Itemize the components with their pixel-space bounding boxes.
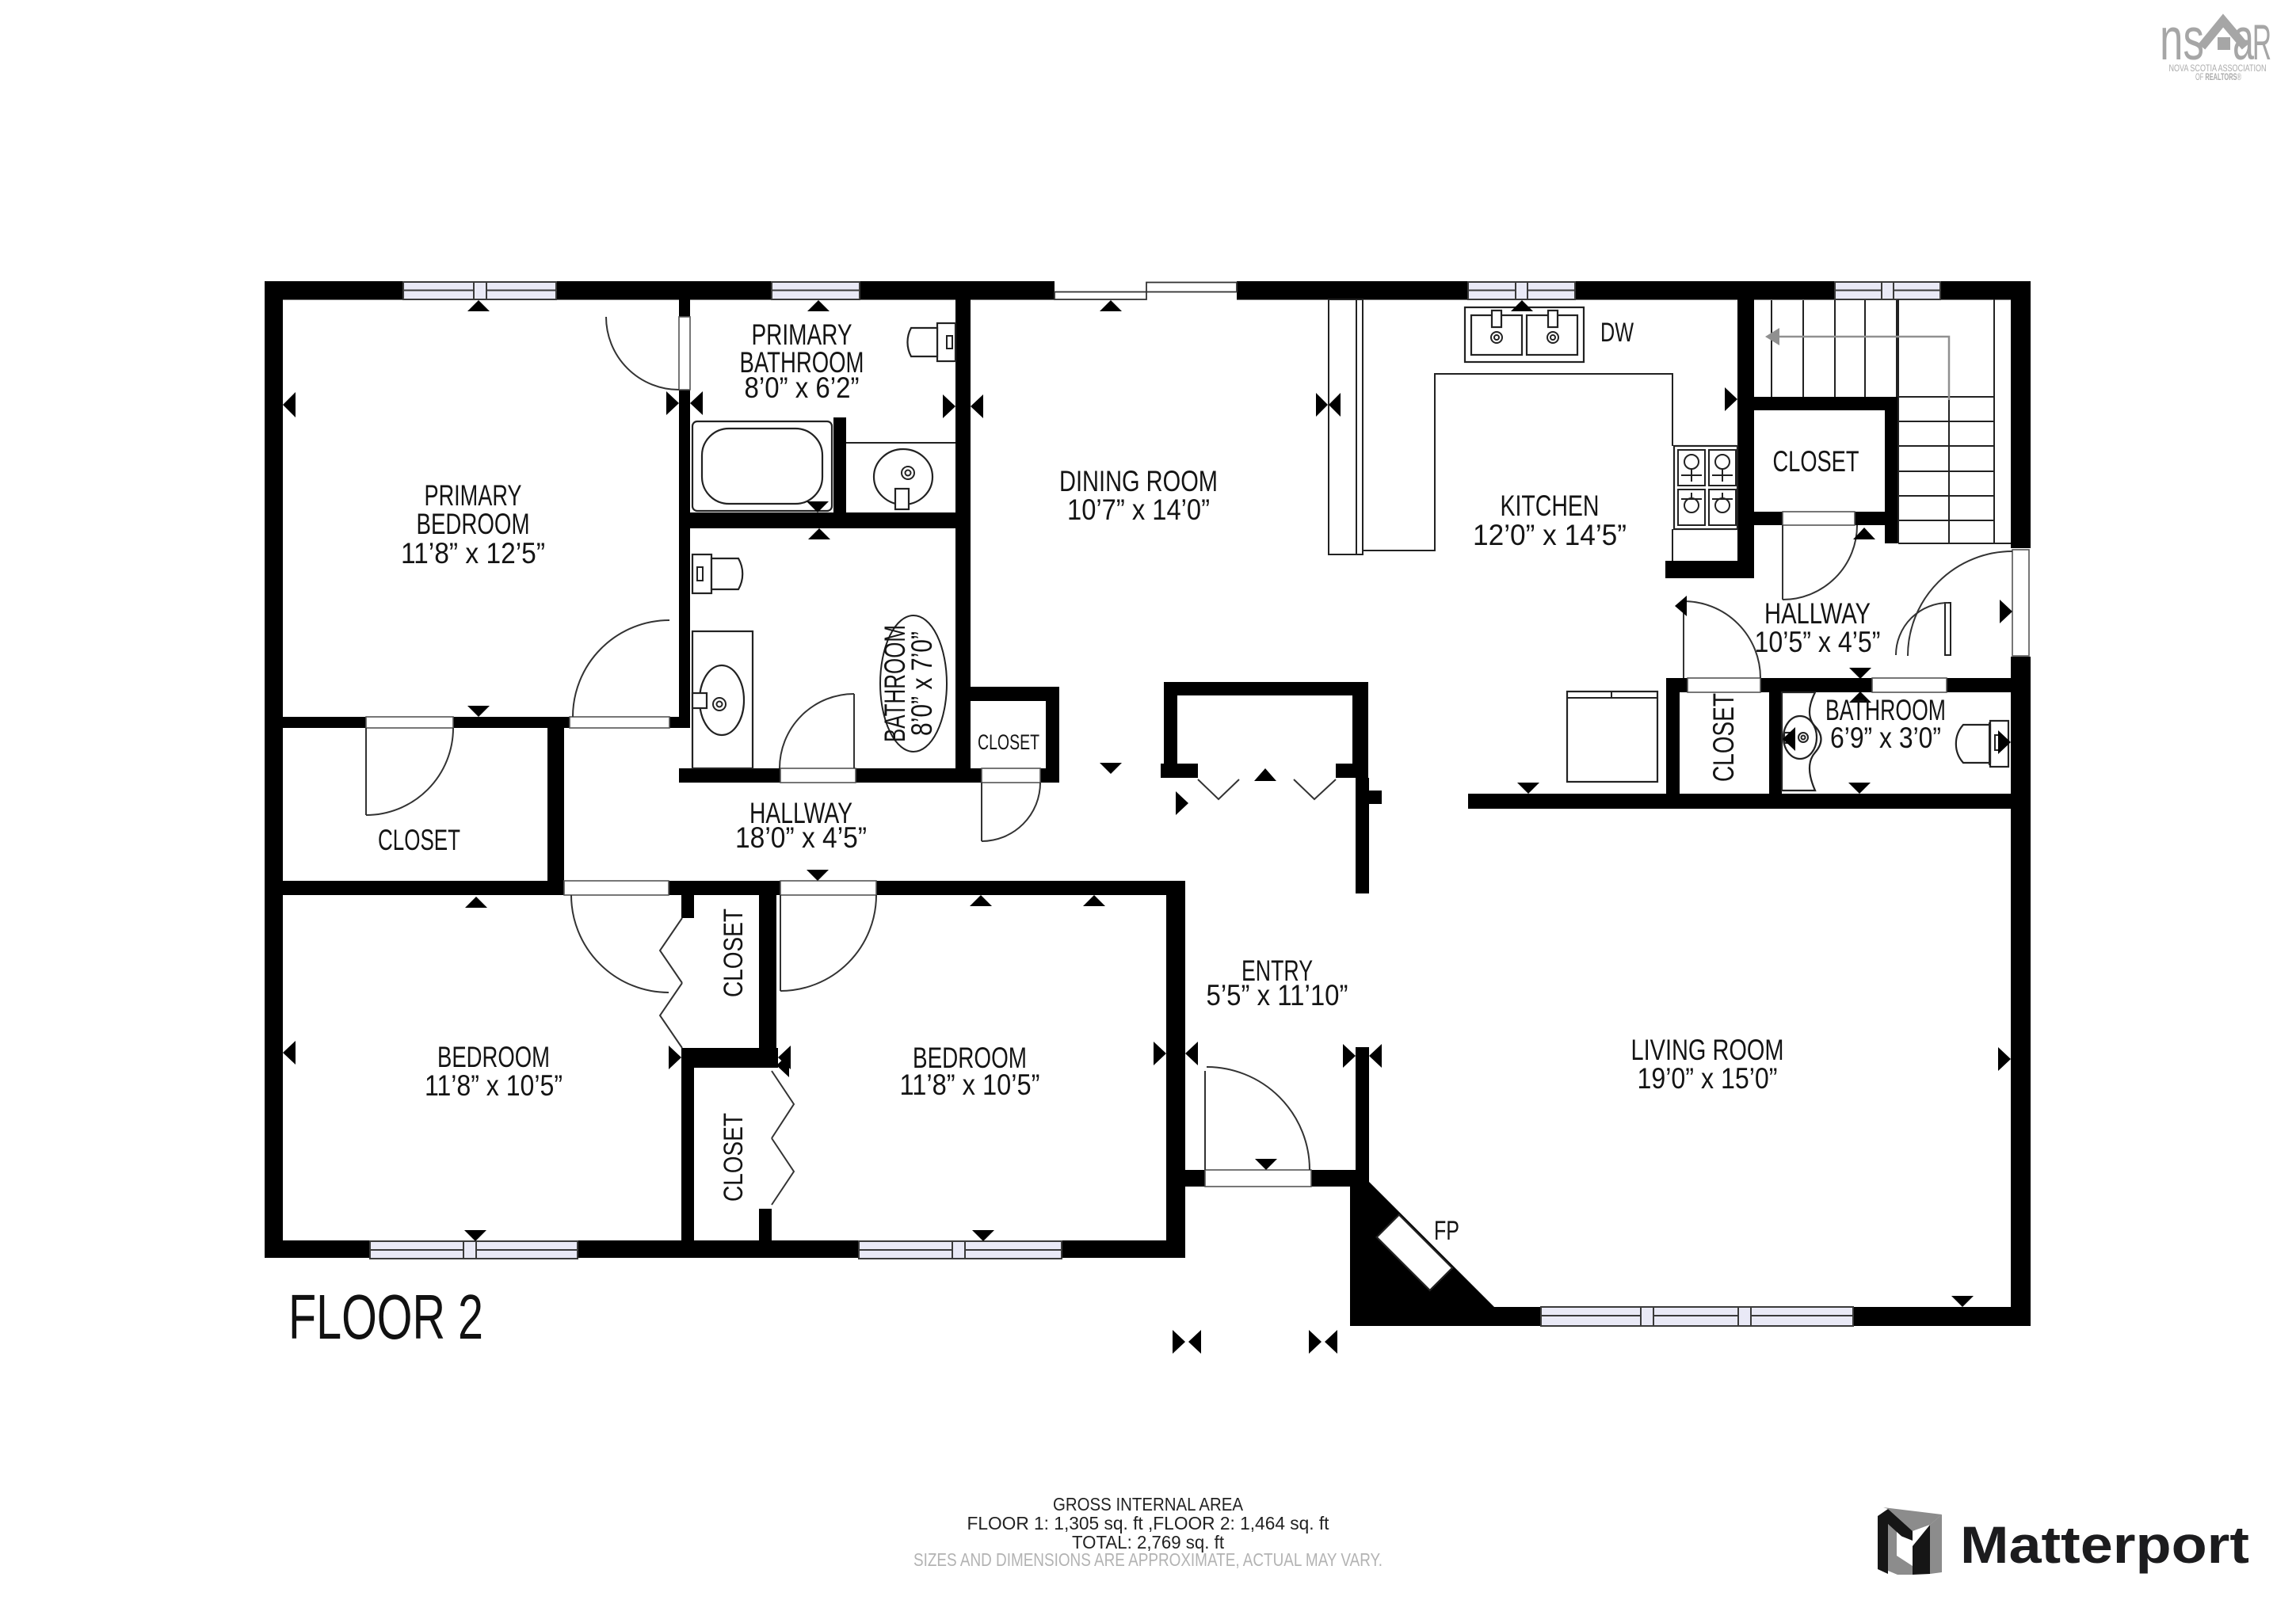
svg-text:GROSS INTERNAL AREA: GROSS INTERNAL AREA [1053, 1494, 1244, 1514]
svg-text:CLOSET: CLOSET [1773, 445, 1859, 478]
svg-text:CLOSET: CLOSET [719, 909, 749, 997]
svg-text:PRIMARY: PRIMARY [425, 479, 522, 512]
svg-text:CLOSET: CLOSET [719, 1113, 749, 1202]
svg-text:8’0” x 6’2”: 8’0” x 6’2” [745, 371, 860, 404]
svg-text:11’8” x 10’5”: 11’8” x 10’5” [425, 1069, 563, 1102]
svg-text:10’7” x 14’0”: 10’7” x 14’0” [1067, 493, 1210, 526]
svg-text:CLOSET: CLOSET [1707, 693, 1740, 782]
svg-text:OF REALTORS®: OF REALTORS® [2195, 73, 2241, 82]
svg-text:Matterport: Matterport [1960, 1515, 2249, 1574]
svg-text:HALLWAY: HALLWAY [1764, 597, 1871, 630]
svg-text:8’0” x 7’0”: 8’0” x 7’0” [906, 631, 938, 736]
svg-text:FLOOR 2: FLOOR 2 [288, 1282, 483, 1352]
svg-text:SIZES AND DIMENSIONS ARE APPRO: SIZES AND DIMENSIONS ARE APPROXIMATE, AC… [913, 1549, 1383, 1570]
svg-text:BEDROOM: BEDROOM [417, 508, 530, 540]
svg-text:11’8” x 10’5”: 11’8” x 10’5” [900, 1069, 1040, 1101]
svg-text:CLOSET: CLOSET [378, 824, 460, 856]
svg-text:12’0” x 14’5”: 12’0” x 14’5” [1473, 519, 1627, 551]
svg-text:DW: DW [1600, 318, 1634, 348]
svg-text:FP: FP [1434, 1216, 1459, 1246]
svg-text:LIVING ROOM: LIVING ROOM [1631, 1034, 1784, 1066]
svg-text:FLOOR 1: 1,305 sq. ft ,FLOOR 2: FLOOR 1: 1,305 sq. ft ,FLOOR 2: 1,464 sq… [967, 1513, 1330, 1533]
svg-text:R: R [2252, 15, 2271, 70]
svg-text:19’0” x 15’0”: 19’0” x 15’0” [1638, 1062, 1778, 1095]
svg-text:BEDROOM: BEDROOM [437, 1041, 550, 1073]
svg-text:5’5” x 11’10”: 5’5” x 11’10” [1207, 979, 1348, 1012]
svg-text:6’9” x 3’0”: 6’9” x 3’0” [1830, 722, 1941, 754]
svg-text:DINING ROOM: DINING ROOM [1059, 465, 1218, 497]
svg-text:10’5” x 4’5”: 10’5” x 4’5” [1755, 626, 1881, 658]
svg-text:CLOSET: CLOSET [978, 730, 1039, 754]
svg-text:ns: ns [2160, 6, 2204, 72]
svg-text:KITCHEN: KITCHEN [1501, 490, 1600, 522]
svg-text:18’0” x 4’5”: 18’0” x 4’5” [735, 821, 867, 854]
svg-text:11’8” x 12’5”: 11’8” x 12’5” [401, 537, 545, 570]
